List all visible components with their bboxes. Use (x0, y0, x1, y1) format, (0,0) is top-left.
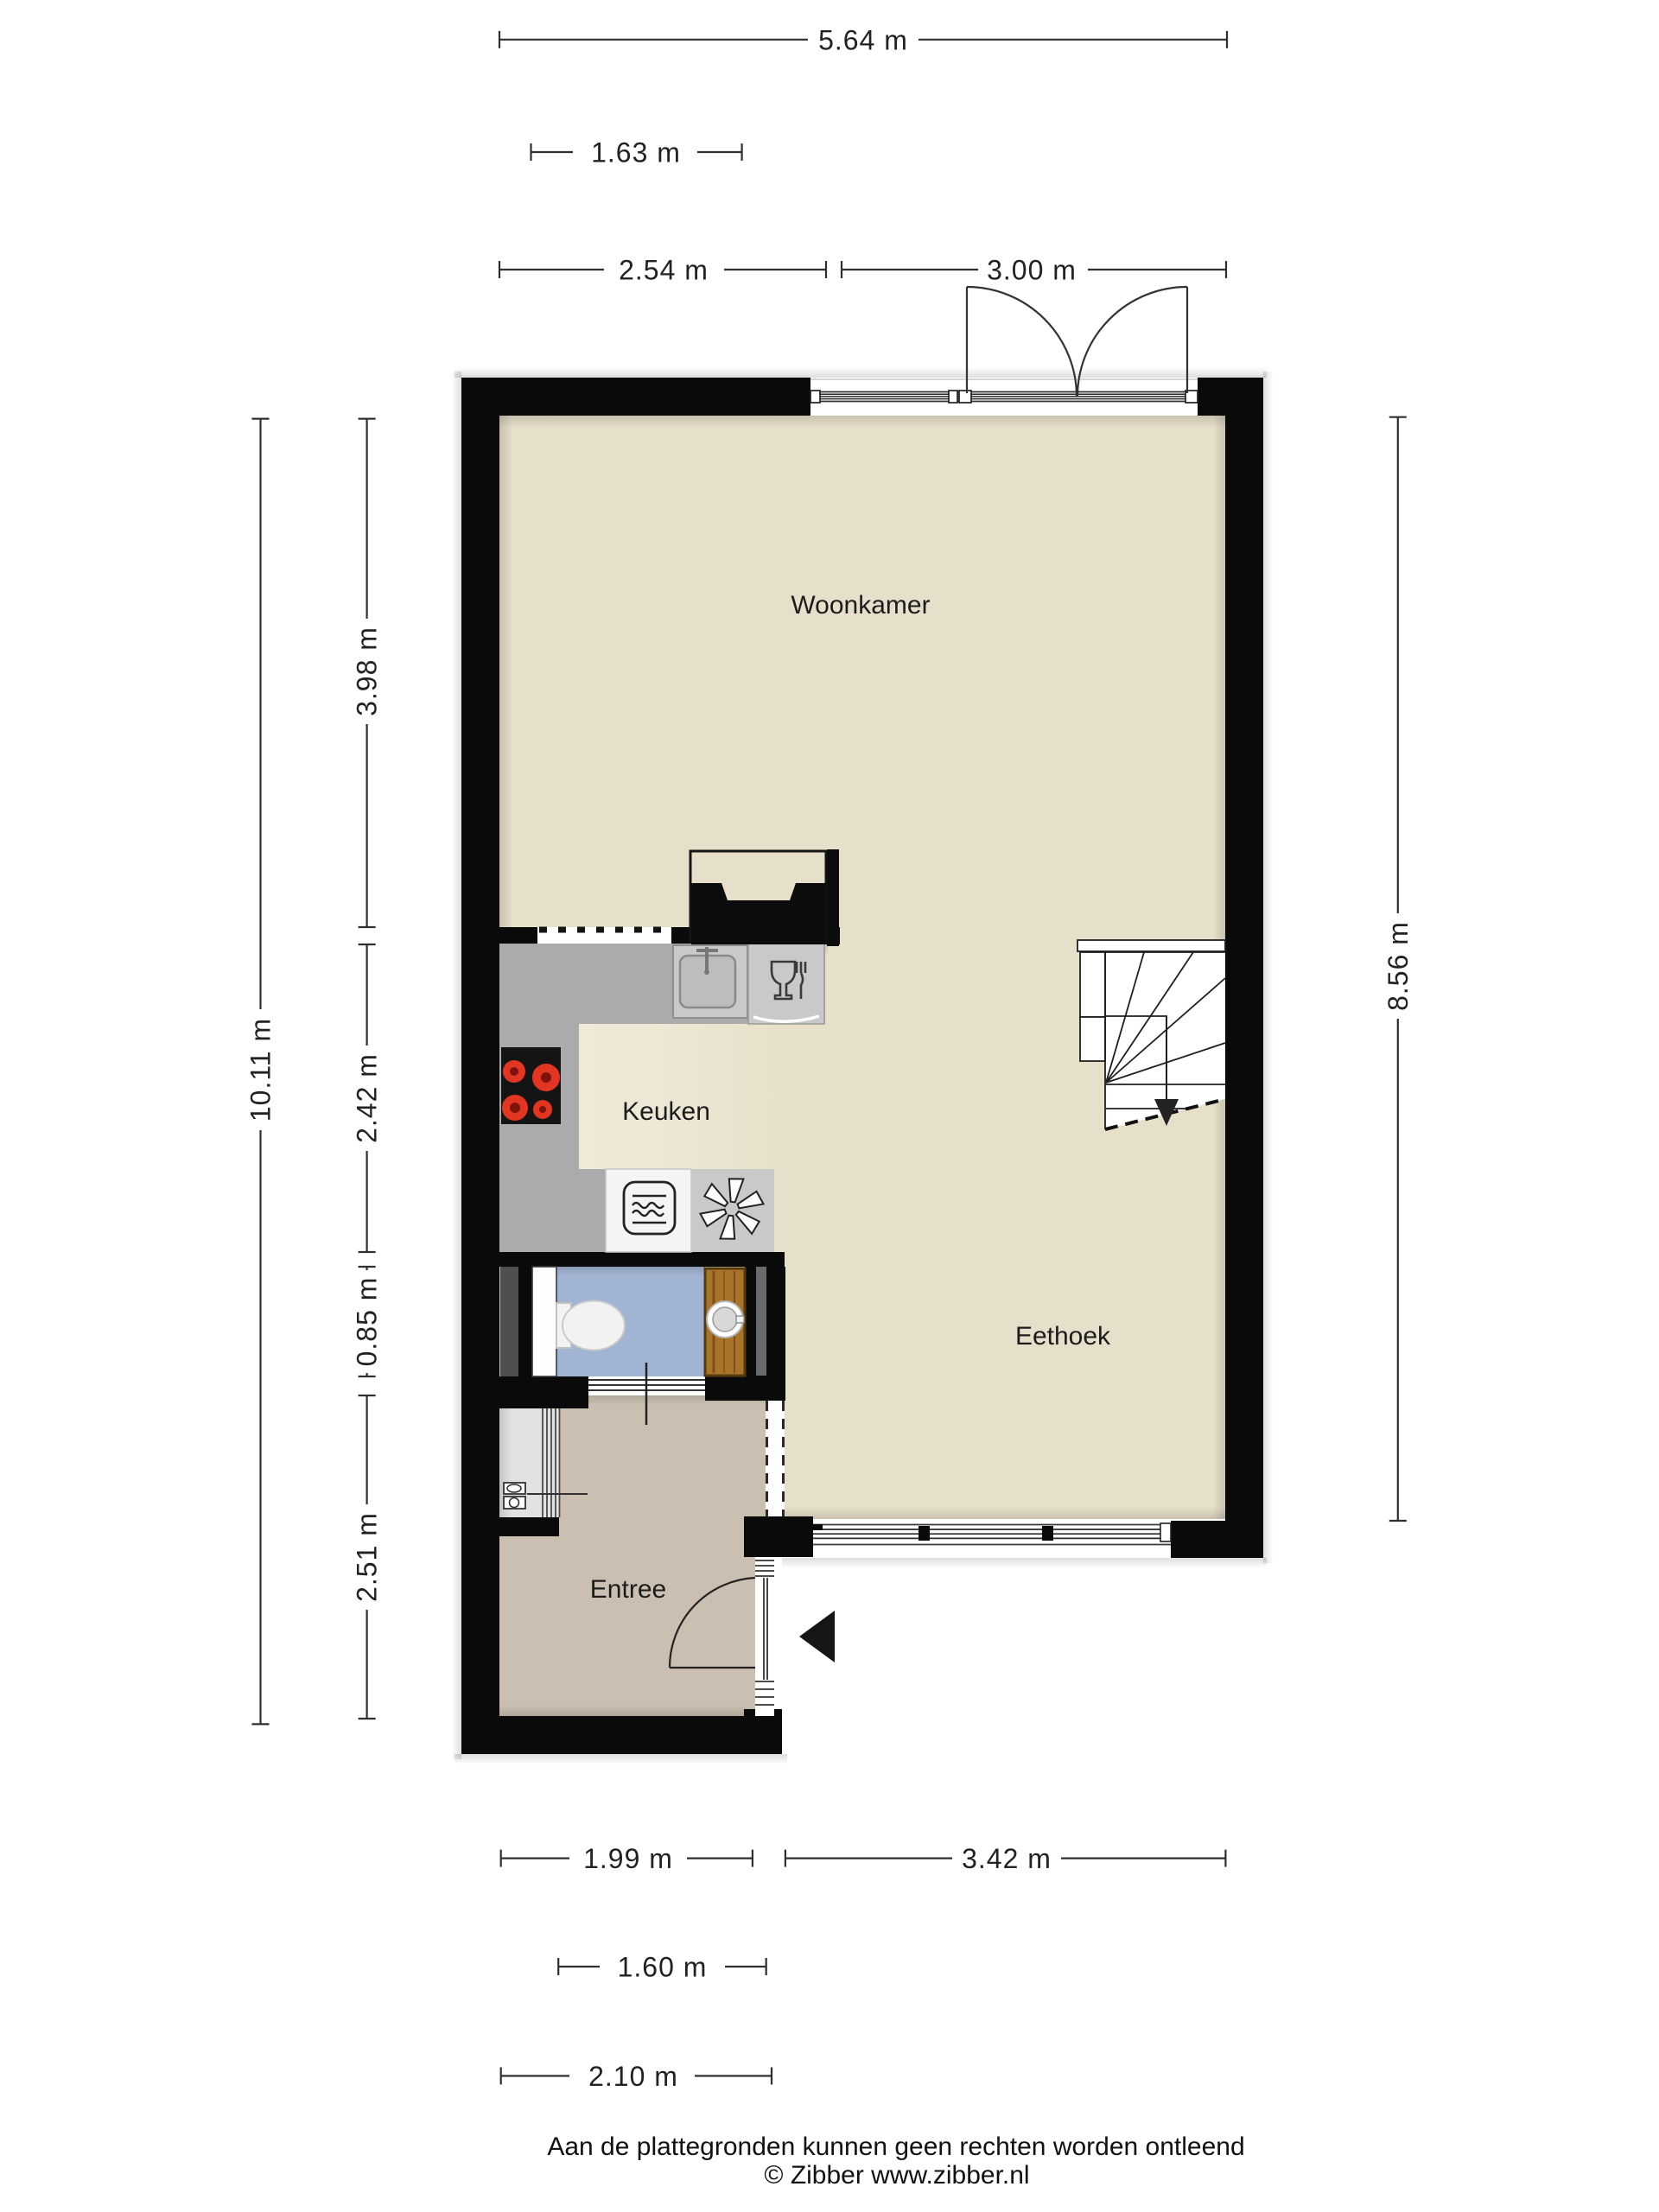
svg-text:© Zibber www.zibber.nl: © Zibber www.zibber.nl (764, 2161, 1029, 2190)
svg-text:Aan de plattegronden kunnen ge: Aan de plattegronden kunnen geen rechten… (547, 2133, 1244, 2161)
svg-text:Eethoek: Eethoek (1015, 1322, 1111, 1351)
svg-text:3.00 m: 3.00 m (987, 255, 1077, 286)
svg-text:5.64 m: 5.64 m (818, 24, 908, 55)
svg-text:2.54 m: 2.54 m (619, 255, 709, 286)
svg-text:Woonkamer: Woonkamer (791, 591, 930, 620)
svg-text:0.85 m: 0.85 m (352, 1277, 383, 1367)
svg-text:10.11 m: 10.11 m (245, 1018, 276, 1122)
svg-text:Keuken: Keuken (622, 1097, 710, 1126)
svg-text:Entree: Entree (590, 1575, 666, 1604)
svg-text:1.99 m: 1.99 m (583, 1843, 673, 1874)
svg-text:2.42 m: 2.42 m (352, 1053, 383, 1143)
svg-text:8.56 m: 8.56 m (1382, 921, 1414, 1011)
svg-text:3.98 m: 3.98 m (352, 626, 383, 716)
svg-text:1.60 m: 1.60 m (618, 1952, 708, 1983)
svg-text:1.63 m: 1.63 m (591, 137, 681, 168)
svg-text:2.51 m: 2.51 m (352, 1512, 383, 1602)
svg-text:2.10 m: 2.10 m (588, 2061, 678, 2092)
svg-text:3.42 m: 3.42 m (962, 1843, 1052, 1874)
